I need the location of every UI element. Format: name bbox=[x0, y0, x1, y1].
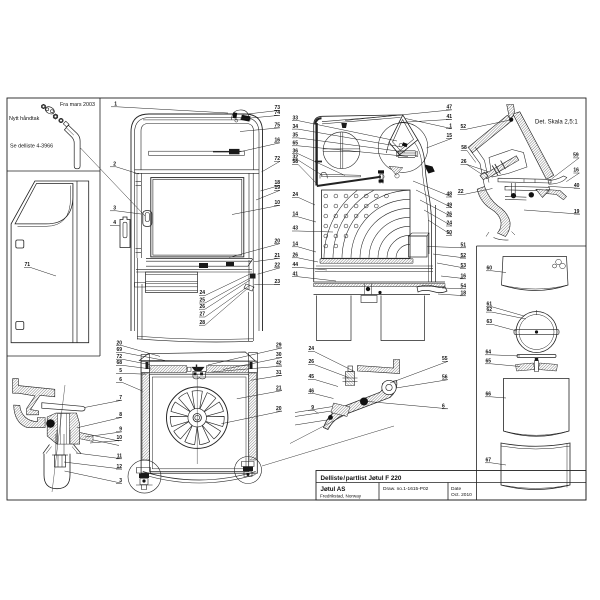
svg-text:Fredrikstad, Norway: Fredrikstad, Norway bbox=[320, 494, 362, 499]
svg-text:Fra mars 2003: Fra mars 2003 bbox=[60, 102, 95, 108]
svg-text:Nytt håndtak: Nytt håndtak bbox=[9, 115, 40, 122]
svg-text:Jøtul AS: Jøtul AS bbox=[321, 486, 346, 493]
svg-text:Det. Skala 2,5:1: Det. Skala 2,5:1 bbox=[535, 120, 578, 126]
svg-text:Oct. 2010: Oct. 2010 bbox=[451, 492, 472, 498]
svg-text:Delliste / partlist Jøtul F 22: Delliste / partlist Jøtul F 220 bbox=[321, 475, 402, 482]
svg-text:Se delliste 4-3966: Se delliste 4-3966 bbox=[10, 144, 53, 150]
svg-text:Draw. no.1-1615-P02: Draw. no.1-1615-P02 bbox=[383, 486, 429, 492]
svg-text:Date: Date bbox=[451, 486, 461, 492]
